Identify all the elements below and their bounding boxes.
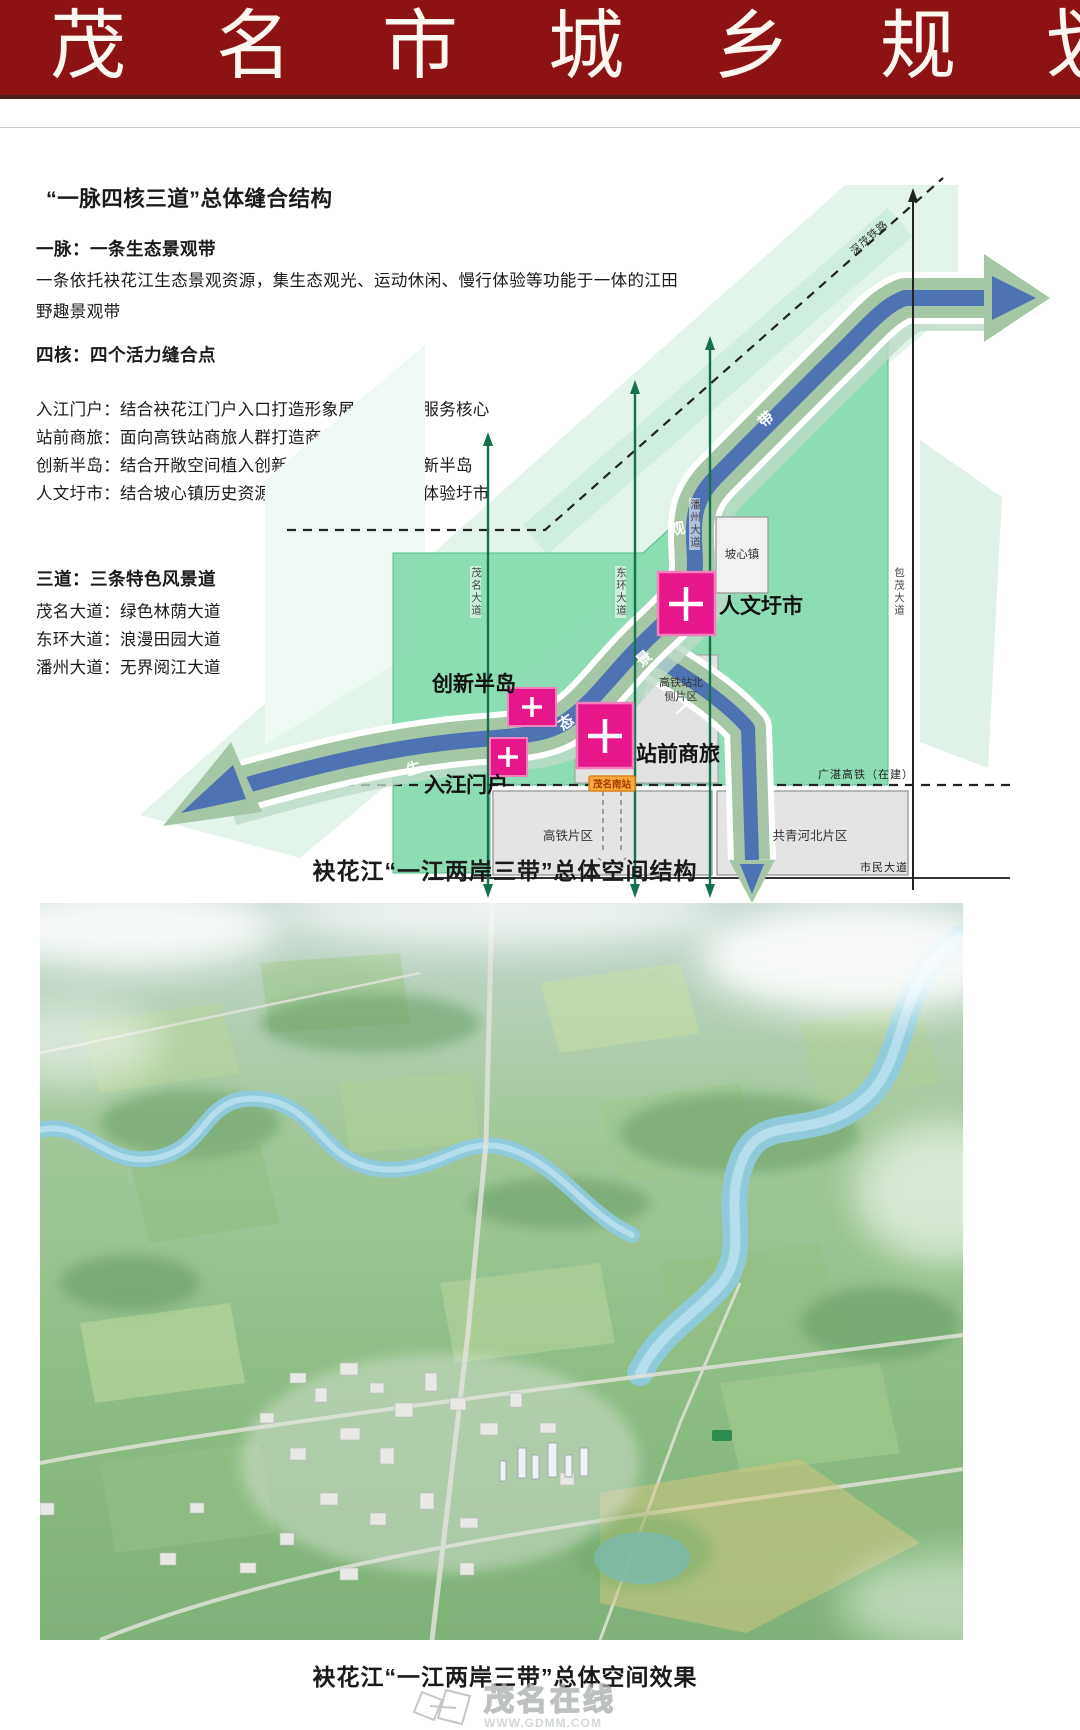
area-label-hsr-block: 高铁片区 — [543, 828, 593, 843]
area-label-hsr-north-1: 高铁站北 — [659, 675, 703, 689]
watermark-url: WWW.GDMM.COM — [484, 1716, 616, 1730]
road-label-panzhou: 潘州大道 — [689, 498, 700, 550]
area-label-poxin: 坡心镇 — [725, 547, 760, 561]
road-label-donghuan: 东环大道 — [615, 566, 626, 618]
area-label-hsr-north-2: 侧片区 — [665, 690, 698, 703]
aerial-rendering-photo — [40, 903, 963, 1640]
watermark-name: 茂名在线 — [484, 1686, 616, 1716]
site-title: 茂名市城乡规划 — [50, 8, 1080, 88]
road-label-maoming: 茂名大道 — [470, 566, 481, 618]
eco-belt-kite — [920, 440, 1002, 768]
header-banner: 茂名市城乡规划 — [0, 0, 1080, 99]
watermark-logo-icon — [412, 1686, 476, 1730]
rail-label-guangzhan: 广湛高铁（在建） — [818, 766, 914, 782]
node-label-renwen: 人文圩市 — [719, 594, 803, 618]
node-label-zhanqian: 站前商旅 — [636, 742, 720, 766]
planning-diagram: 入江门户 创新半岛 站前商旅 人文圩市 生 态 景 观 带 坡心镇 高铁站北 侧… — [0, 140, 1080, 910]
node-label-rujiang: 入江门户 — [424, 773, 508, 797]
aerial-rendering-art — [40, 903, 963, 1640]
station-badge-label: 茂名南站 — [592, 779, 632, 791]
node-label-chuangxin: 创新半岛 — [431, 672, 516, 696]
area-label-gongqing: 共青河北片区 — [772, 829, 847, 843]
svg-text:观: 观 — [669, 520, 687, 539]
caption-structure: 袂花江“一江两岸三带”总体空间结构 — [0, 852, 1010, 886]
header-divider — [0, 127, 1080, 128]
highway-sign — [712, 1430, 732, 1441]
road-label-baomao: 包茂大道 — [893, 566, 904, 618]
watermark: 茂名在线 WWW.GDMM.COM — [412, 1686, 732, 1730]
